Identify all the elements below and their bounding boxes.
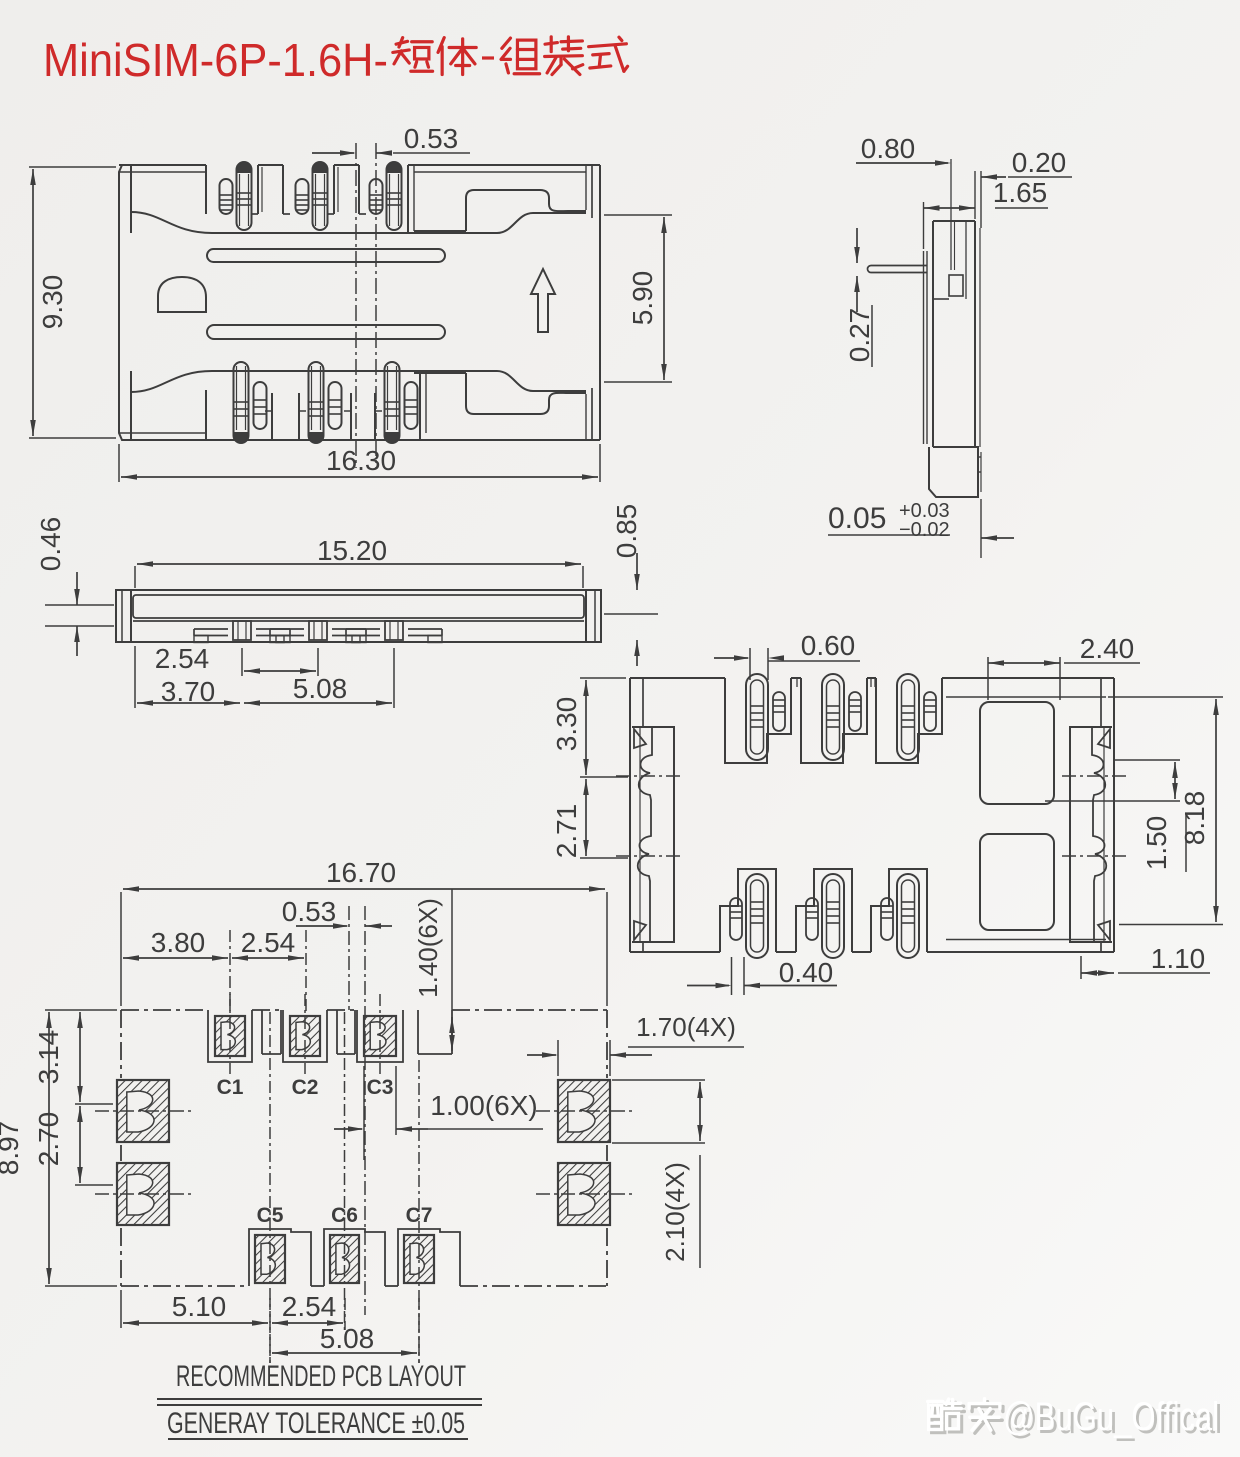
svg-text:2.40: 2.40 [1080,633,1135,664]
svg-text:1.50: 1.50 [1141,816,1172,871]
svg-text:0.27: 0.27 [844,308,875,363]
svg-text:2.54: 2.54 [241,927,296,958]
svg-text:0.53: 0.53 [282,896,337,927]
svg-text:5.08: 5.08 [293,673,348,704]
svg-text:3.80: 3.80 [151,927,206,958]
svg-text:1.70(4X): 1.70(4X) [636,1012,736,1042]
svg-text:8.18: 8.18 [1179,791,1210,846]
svg-text:C1: C1 [217,1076,244,1099]
svg-text:0.05: 0.05 [828,502,886,535]
svg-text:2.71: 2.71 [551,804,582,859]
svg-text:C3: C3 [367,1076,394,1099]
svg-text:0.53: 0.53 [404,123,459,154]
svg-text:8.97: 8.97 [0,1121,24,1176]
svg-text:1.00(6X): 1.00(6X) [430,1090,537,1121]
svg-text:RECOMMENDED PCB LAYOUT: RECOMMENDED PCB LAYOUT [176,1360,466,1393]
svg-text:2.70: 2.70 [33,1112,64,1167]
svg-text:3.14: 3.14 [33,1030,64,1085]
svg-text:0.60: 0.60 [801,630,856,661]
svg-text:0.80: 0.80 [861,133,916,164]
svg-text:0.85: 0.85 [611,504,642,559]
svg-text:2.54: 2.54 [282,1291,337,1322]
svg-text:1.65: 1.65 [993,177,1048,208]
svg-text:0.20: 0.20 [1012,147,1067,178]
svg-text:2.10(4X): 2.10(4X) [660,1162,690,1262]
svg-text:MiniSIM-6P-1.6H-: MiniSIM-6P-1.6H- [43,34,388,86]
svg-text:3.30: 3.30 [551,697,582,752]
svg-text:−0.02: −0.02 [899,519,950,541]
svg-text:5.90: 5.90 [627,271,658,326]
svg-text:C2: C2 [292,1076,319,1099]
svg-text:GENERAY TOLERANCE ±0.05: GENERAY TOLERANCE ±0.05 [167,1407,465,1440]
svg-text:2.54: 2.54 [155,643,210,674]
svg-text:16.70: 16.70 [326,857,396,888]
svg-text:16.30: 16.30 [326,445,396,476]
svg-text:5.08: 5.08 [320,1323,375,1354]
svg-text:0.40: 0.40 [779,957,834,988]
svg-text:9.30: 9.30 [37,275,68,330]
svg-text:1.40(6X): 1.40(6X) [413,898,443,998]
svg-text:0.46: 0.46 [35,517,66,572]
svg-text:1.10: 1.10 [1151,943,1206,974]
svg-text:5.10: 5.10 [172,1291,227,1322]
svg-text:@BuGu_Offical: @BuGu_Offical [1003,1395,1219,1439]
svg-text:15.20: 15.20 [317,535,387,566]
